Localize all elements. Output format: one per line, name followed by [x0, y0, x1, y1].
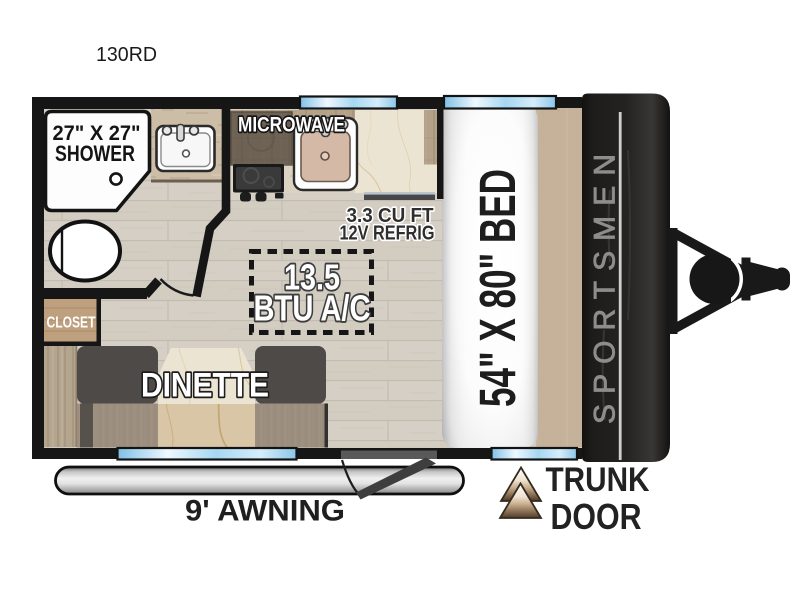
svg-text:SPORTSMEN: SPORTSMEN: [589, 154, 622, 424]
svg-text:54" X 80" BED: 54" X 80" BED: [469, 169, 526, 407]
svg-text:CLOSET: CLOSET: [47, 315, 96, 332]
svg-text:DINETTE: DINETTE: [141, 367, 269, 405]
svg-text:TRUNK: TRUNK: [546, 461, 650, 499]
svg-text:DOOR: DOOR: [551, 496, 642, 537]
svg-text:SHOWER: SHOWER: [55, 141, 135, 166]
svg-text:9' AWNING: 9' AWNING: [185, 495, 345, 528]
svg-text:130RD: 130RD: [96, 44, 157, 66]
svg-text:12V REFRIG: 12V REFRIG: [340, 223, 435, 245]
svg-text:MICROWAVE: MICROWAVE: [238, 114, 345, 137]
svg-text:BTU A/C: BTU A/C: [254, 288, 371, 329]
